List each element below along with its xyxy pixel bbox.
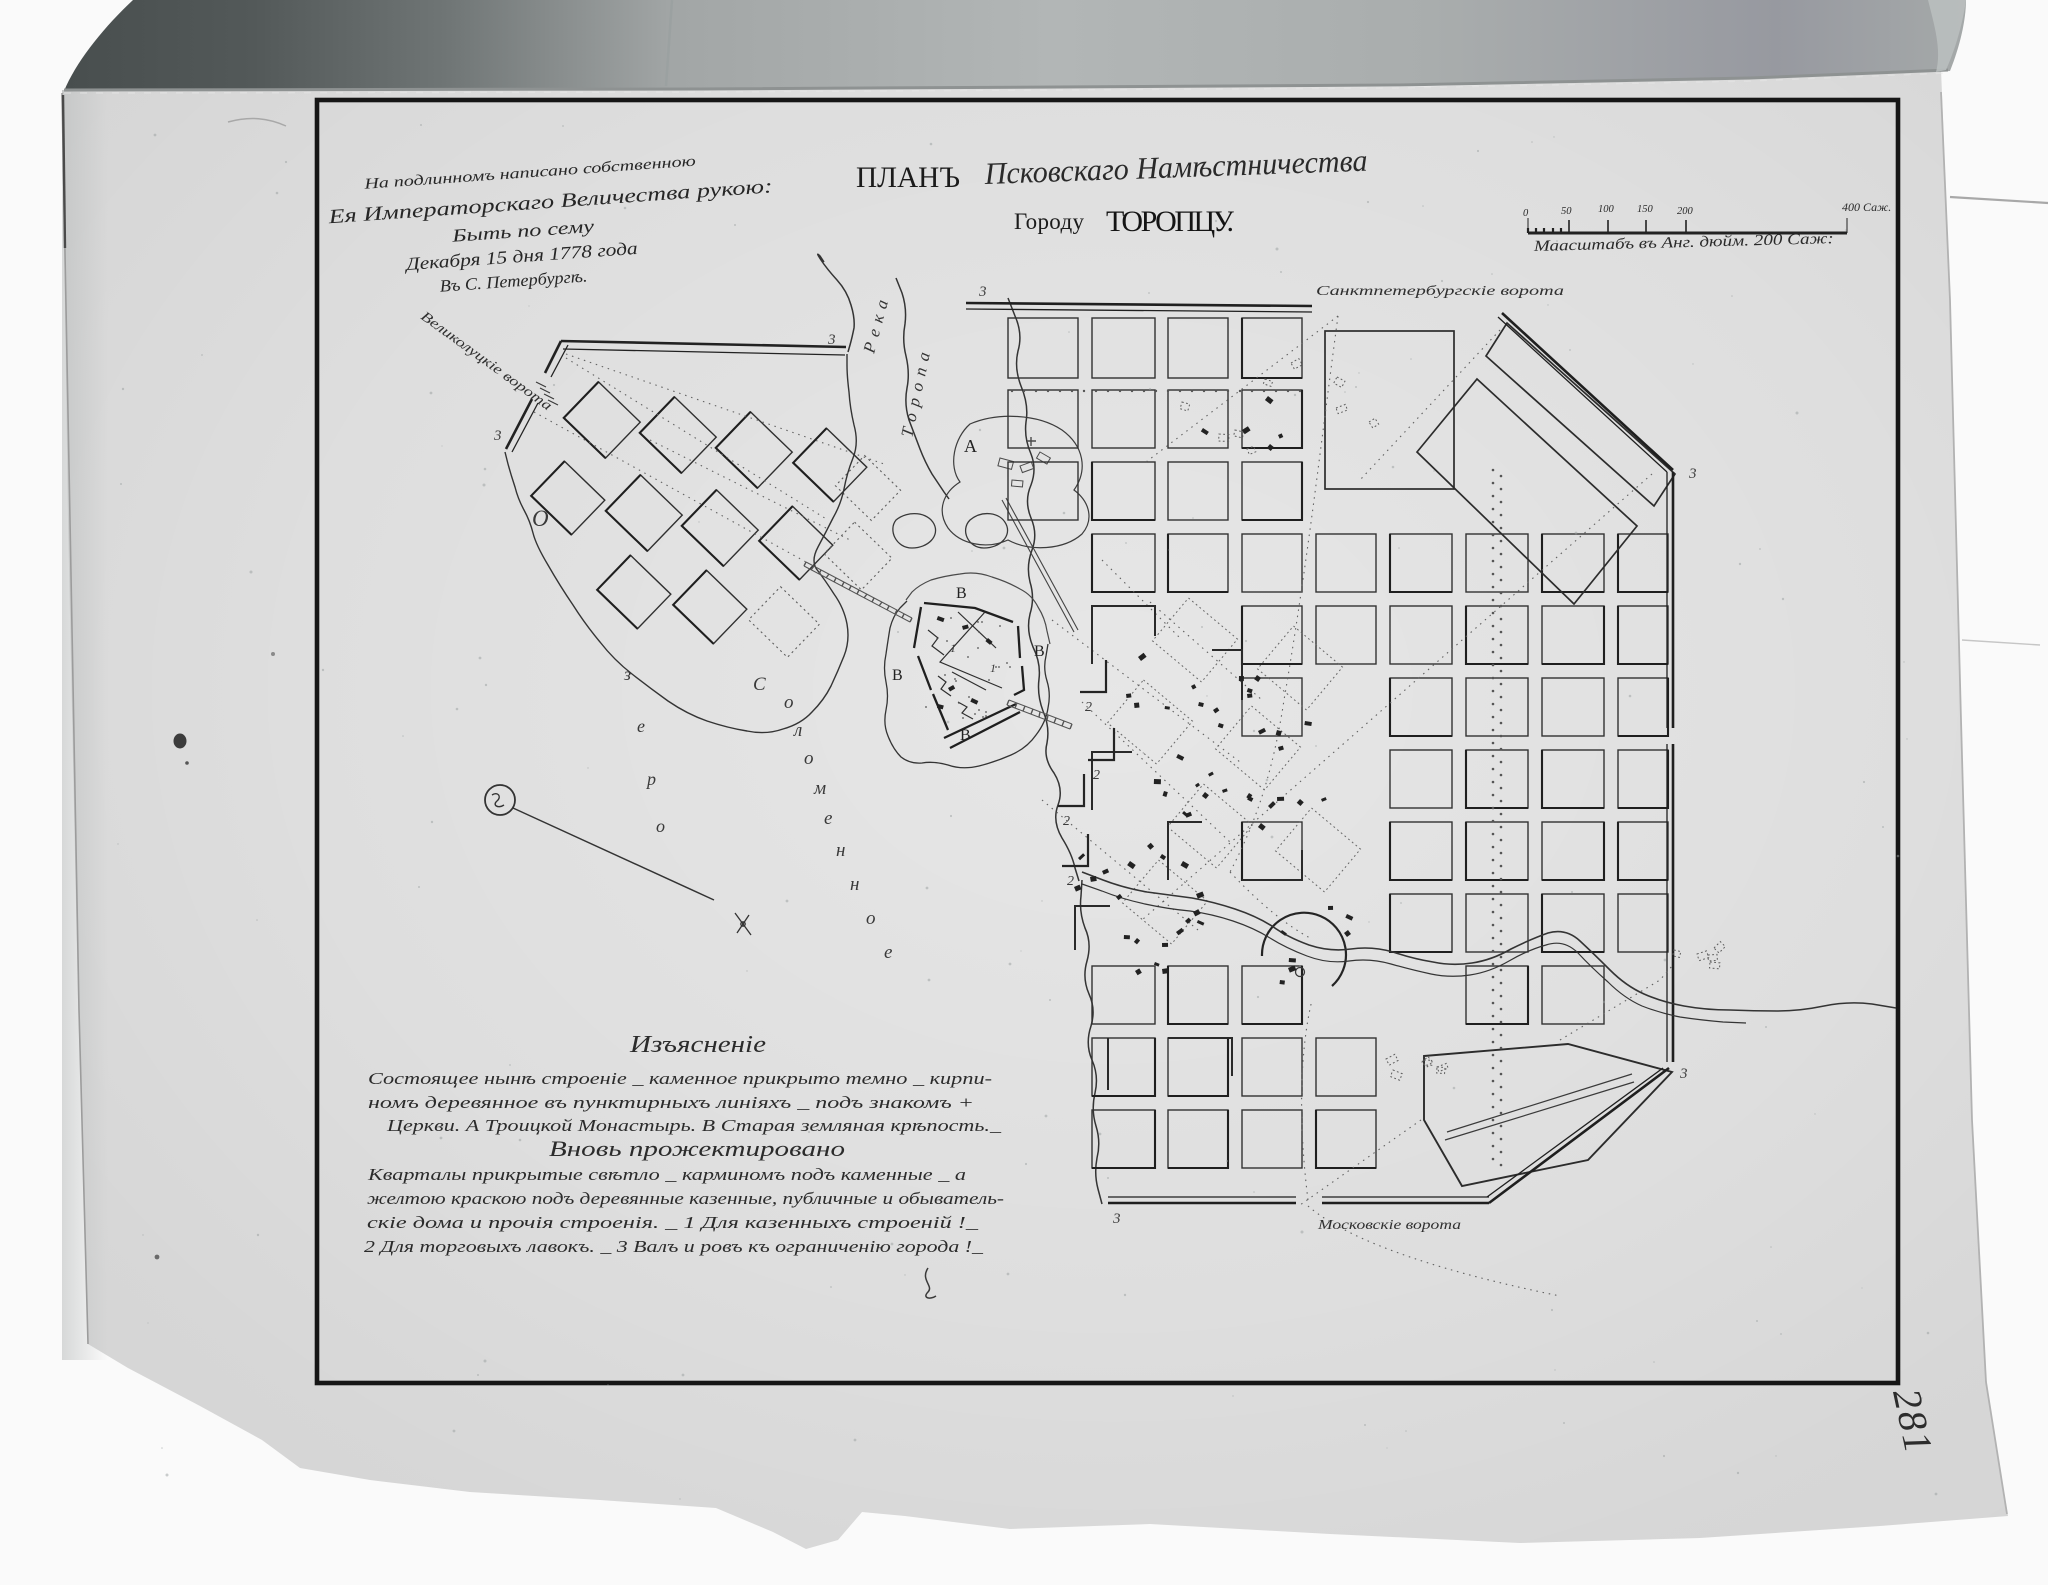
svg-text:н: н: [850, 874, 859, 895]
svg-text:желтою краскою подъ деревянные: желтою краскою подъ деревянные казенные,…: [367, 1189, 1004, 1208]
svg-text:Городу: Городу: [1014, 209, 1086, 234]
svg-text:100: 100: [1598, 204, 1615, 215]
svg-text:е: е: [884, 942, 892, 963]
svg-text:2: 2: [1085, 700, 1092, 715]
svg-text:150: 150: [1637, 204, 1654, 215]
svg-text:ПЛАНЪ: ПЛАНЪ: [856, 161, 960, 194]
svg-text:Состоящее нынѣ строеніе _ каме: Состоящее нынѣ строеніе _ каменное прикр…: [368, 1069, 992, 1088]
svg-text:о: о: [656, 816, 665, 836]
svg-text:р: р: [645, 769, 656, 789]
svg-text:1: 1: [990, 661, 996, 675]
svg-text:з: з: [623, 664, 631, 684]
svg-text:200: 200: [1677, 206, 1694, 217]
svg-text:А: А: [964, 436, 977, 456]
svg-text:В: В: [892, 667, 903, 684]
svg-text:о: о: [804, 748, 814, 769]
svg-text:В: В: [960, 727, 971, 744]
svg-text:скіе дома и прочія строенія. _: скіе дома и прочія строенія. _ 1 Для каз…: [367, 1213, 979, 1232]
svg-text:Церкви. А Троицкой Монастырь.: Церкви. А Троицкой Монастырь. В Старая з…: [386, 1116, 1002, 1135]
svg-text:О: О: [532, 506, 549, 531]
svg-text:3: 3: [978, 284, 987, 300]
svg-text:3: 3: [1688, 466, 1697, 482]
svg-text:2: 2: [1063, 814, 1070, 829]
svg-text:0: 0: [1523, 208, 1529, 219]
svg-text:Московскіе ворота: Московскіе ворота: [1317, 1218, 1461, 1233]
svg-text:С: С: [753, 674, 766, 695]
svg-text:2: 2: [1093, 768, 1100, 783]
svg-text:Кварталы прикрытые свѣтло _ ка: Кварталы прикрытые свѣтло _ карминомъ по…: [367, 1165, 966, 1184]
svg-text:ТОРОПЦУ.: ТОРОПЦУ.: [1106, 205, 1238, 238]
svg-text:н: н: [836, 840, 845, 861]
svg-text:400 Саж.: 400 Саж.: [1842, 200, 1891, 214]
svg-text:Вновь прожектировано: Вновь прожектировано: [549, 1136, 845, 1161]
svg-text:3: 3: [493, 428, 502, 444]
svg-text:е: е: [637, 716, 645, 736]
svg-text:номъ деревянное въ пунктирныхъ: номъ деревянное въ пунктирныхъ линіяхъ _…: [368, 1093, 974, 1112]
svg-text:о: о: [866, 908, 876, 929]
svg-text:3: 3: [1679, 1066, 1688, 1082]
svg-text:м: м: [813, 778, 826, 799]
svg-text:о: о: [784, 692, 794, 713]
svg-text:В: В: [1034, 643, 1045, 660]
svg-text:2 Для торговыхъ лавокъ. _ 3 Ва: 2 Для торговыхъ лавокъ. _ 3 Валъ и ровъ …: [364, 1237, 984, 1256]
svg-text:Санктпетербургскіе ворота: Санктпетербургскіе ворота: [1316, 284, 1564, 299]
svg-text:В: В: [956, 585, 967, 602]
svg-text:Изъясненіе: Изъясненіе: [629, 1032, 767, 1058]
svg-text:1: 1: [950, 641, 956, 655]
svg-text:л: л: [793, 720, 802, 741]
svg-text:3: 3: [1112, 1211, 1121, 1227]
svg-text:3: 3: [827, 332, 836, 348]
svg-text:е: е: [824, 808, 832, 829]
svg-text:50: 50: [1561, 206, 1572, 217]
svg-text:2: 2: [1067, 874, 1074, 889]
